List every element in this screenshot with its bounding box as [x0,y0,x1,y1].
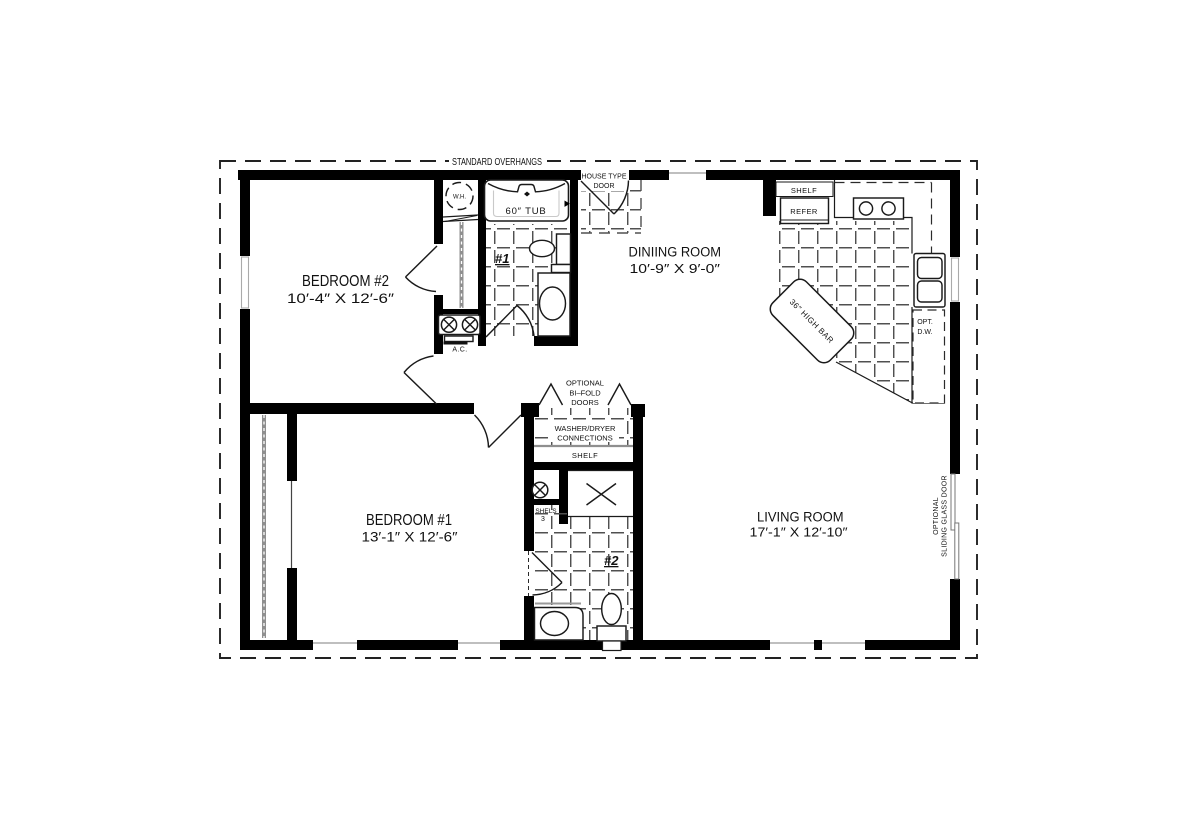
svg-text:LIVING ROOM: LIVING ROOM [757,510,844,525]
svg-text:STANDARD OVERHANGS: STANDARD OVERHANGS [452,157,542,168]
svg-text:HOUSE TYPE: HOUSE TYPE [582,174,627,181]
svg-text:REFER: REFER [790,207,818,216]
svg-text:60″ TUB: 60″ TUB [506,206,547,217]
svg-text:WASHER/DRYER: WASHER/DRYER [555,424,616,433]
svg-text:A.C.: A.C. [452,347,467,354]
svg-text:OPTIONAL: OPTIONAL [566,379,604,388]
svg-text:DOOR: DOOR [594,183,615,190]
svg-text:3: 3 [541,516,545,523]
svg-text:#1: #1 [495,251,509,266]
svg-text:BEDROOM #1: BEDROOM #1 [366,512,452,529]
svg-text:BI–FOLD: BI–FOLD [569,389,601,398]
svg-text:SHELF: SHELF [572,451,598,460]
svg-text:DOORS: DOORS [571,398,599,407]
svg-text:SHELS: SHELS [535,508,557,515]
svg-text:SLIDING GLASS DOOR: SLIDING GLASS DOOR [942,475,949,557]
svg-text:10′-4″ X 12′-6″: 10′-4″ X 12′-6″ [287,290,394,306]
svg-text:10′-9″ X 9′-0″: 10′-9″ X 9′-0″ [630,261,721,276]
svg-text:DINIING ROOM: DINIING ROOM [629,245,722,260]
svg-text:OPTIONAL: OPTIONAL [933,497,940,535]
svg-text:OPT.: OPT. [917,319,933,326]
svg-text:17′-1″ X 12′-10″: 17′-1″ X 12′-10″ [750,525,848,540]
svg-text:13′-1″ X 12′-6″: 13′-1″ X 12′-6″ [362,529,458,545]
svg-text:W.H.: W.H. [453,195,466,201]
svg-text:D.W.: D.W. [917,329,932,336]
svg-text:SHELF: SHELF [791,186,817,195]
svg-text:CONNECTIONS: CONNECTIONS [557,434,612,443]
svg-text:#2: #2 [604,553,619,568]
svg-text:BEDROOM #2: BEDROOM #2 [302,273,389,290]
